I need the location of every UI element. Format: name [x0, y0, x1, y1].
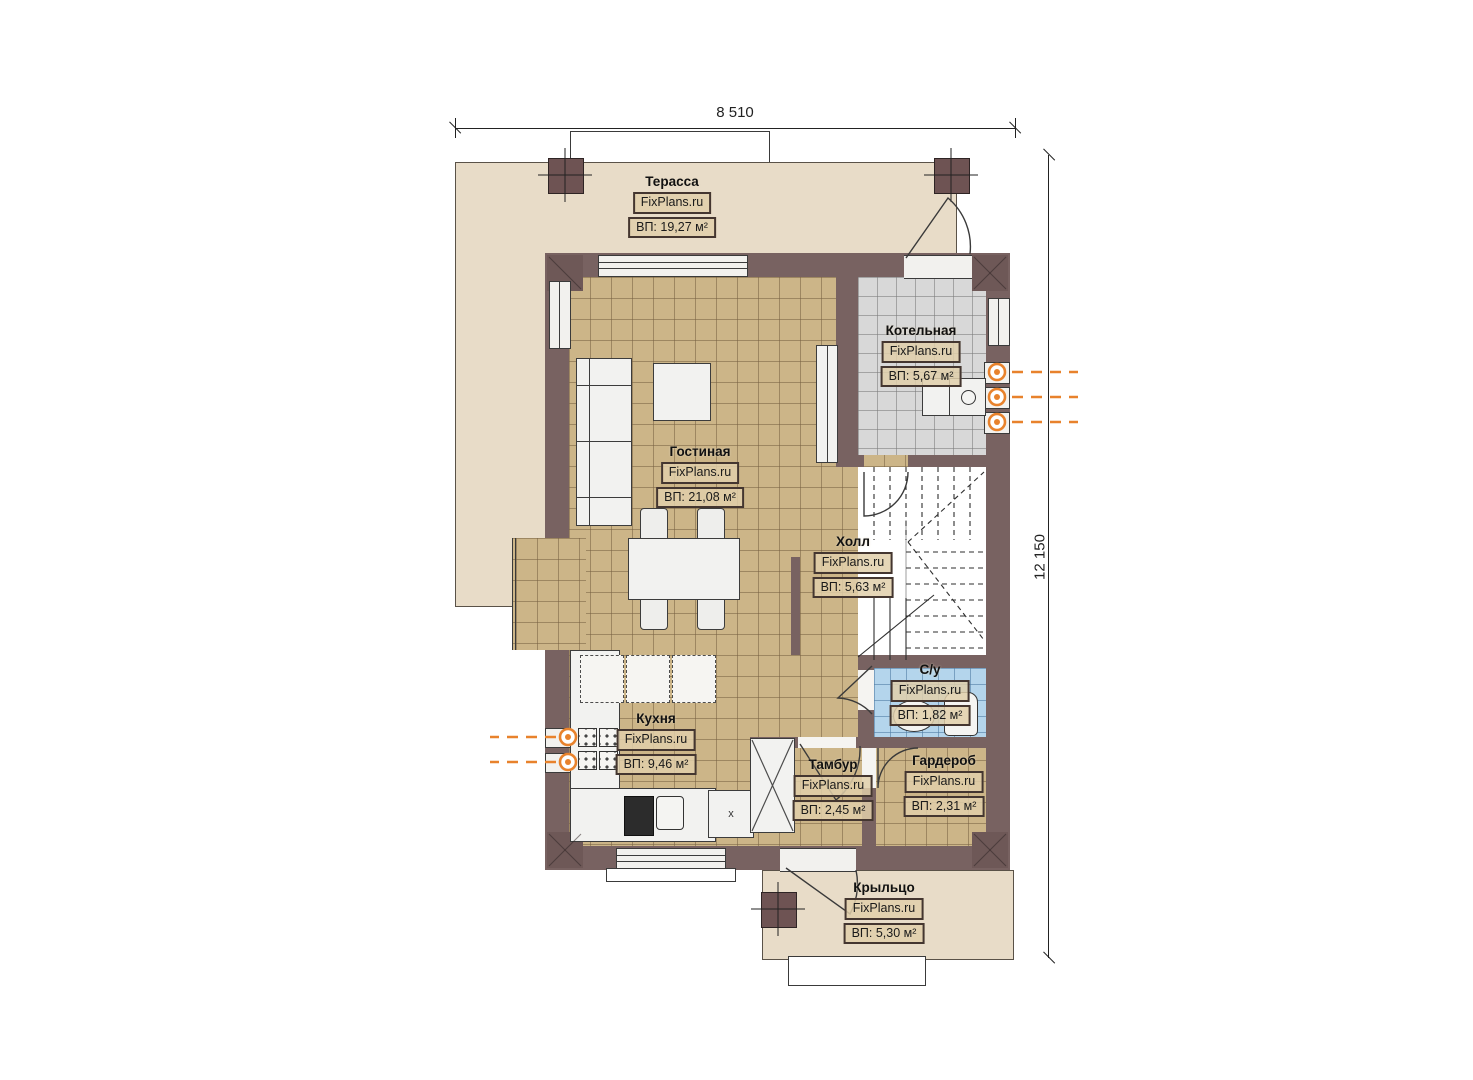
terrace-column-left: [548, 158, 584, 194]
wall-stair-stub-left: [836, 455, 864, 467]
room-label-wardrobe: Гардероб FixPlans.ru ВП: 2,31 м²: [904, 753, 985, 817]
room-area: ВП: 2,45 м²: [793, 800, 874, 822]
room-label-boiler: Котельная FixPlans.ru ВП: 5,67 м²: [881, 323, 962, 387]
room-site-badge: FixPlans.ru: [905, 771, 984, 793]
kitchen-sink: [656, 796, 684, 830]
upper-cabinet: [580, 655, 624, 703]
room-name: Холл: [836, 534, 870, 549]
dining-chair: [640, 596, 668, 630]
roof-overhang-outline: [570, 131, 770, 164]
room-label-terrace: Терасса FixPlans.ru ВП: 19,27 м²: [628, 174, 716, 238]
wall-partition-hall: [791, 557, 800, 655]
bathroom-door-opening: [858, 670, 874, 710]
room-label-hall: Холл FixPlans.ru ВП: 5,63 м²: [813, 534, 894, 598]
dining-chair: [697, 596, 725, 630]
room-site-badge: FixPlans.ru: [661, 462, 740, 484]
utility-port-left-2: [545, 753, 571, 773]
stove-burner: [578, 751, 597, 770]
dining-chair: [640, 508, 668, 542]
dimension-ext: [1015, 118, 1016, 138]
room-site-badge: FixPlans.ru: [882, 341, 961, 363]
dimension-height-label: 12 150: [1032, 534, 1049, 580]
room-site-badge: FixPlans.ru: [617, 729, 696, 751]
room-area: ВП: 9,46 м²: [616, 754, 697, 776]
bay-window-floor: [512, 538, 586, 650]
room-site-badge: FixPlans.ru: [891, 680, 970, 702]
utility-port-right-2: [984, 387, 1010, 409]
room-label-bathroom: С/у FixPlans.ru ВП: 1,82 м²: [890, 662, 971, 726]
room-area: ВП: 21,08 м²: [656, 487, 744, 509]
tambur-closet: [750, 738, 795, 833]
dimension-ext: [455, 118, 456, 138]
room-label-living: Гостиная FixPlans.ru ВП: 21,08 м²: [656, 444, 744, 508]
room-site-badge: FixPlans.ru: [814, 552, 893, 574]
entry-door-opening-terrace: [904, 255, 972, 279]
corner-pylon-top-right: [972, 255, 1008, 291]
room-name: С/у: [919, 662, 940, 677]
wall-stair-stub-right: [908, 455, 986, 467]
upper-cabinet: [626, 655, 670, 703]
dimension-width-line: [455, 128, 1015, 129]
tambur-door-opening: [798, 737, 856, 748]
room-area: ВП: 2,31 м²: [904, 796, 985, 818]
wall-bathroom-bottom: [858, 737, 986, 748]
porch-column: [761, 892, 797, 928]
cabinet-x-mark: x: [708, 790, 754, 838]
utility-port-left-1: [545, 728, 571, 748]
tall-cabinet: [816, 345, 838, 463]
porch-step: [788, 956, 926, 986]
room-area: ВП: 5,63 м²: [813, 577, 894, 599]
dining-chair: [697, 508, 725, 542]
room-site-badge: FixPlans.ru: [794, 775, 873, 797]
room-label-tambur: Тамбур FixPlans.ru ВП: 2,45 м²: [793, 757, 874, 821]
room-name: Котельная: [886, 323, 957, 338]
room-site-badge: FixPlans.ru: [845, 898, 924, 920]
window-south-kitchen: [616, 848, 726, 870]
kitchen-appliance: [624, 796, 654, 836]
wall-living-boiler: [836, 277, 858, 463]
room-area: ВП: 5,30 м²: [844, 923, 925, 945]
room-name: Гардероб: [912, 753, 976, 768]
room-name: Крыльцо: [853, 880, 914, 895]
utility-port-right-1: [984, 362, 1010, 384]
room-name: Терасса: [645, 174, 699, 189]
room-label-porch: Крыльцо FixPlans.ru ВП: 5,30 м²: [844, 880, 925, 944]
window-sill-kitchen: [606, 868, 736, 882]
window-west-living: [549, 281, 571, 349]
utility-port-right-3: [984, 412, 1010, 434]
dimension-width-label: 8 510: [455, 104, 1015, 121]
room-name: Гостиная: [669, 444, 730, 459]
room-name: Кухня: [636, 711, 675, 726]
sofa: [576, 358, 632, 526]
room-label-kitchen: Кухня FixPlans.ru ВП: 9,46 м²: [616, 711, 697, 775]
floor-plan: x: [0, 0, 1473, 1080]
sliding-door-terrace: [598, 255, 748, 277]
room-area: ВП: 1,82 м²: [890, 705, 971, 727]
room-site-badge: FixPlans.ru: [633, 192, 712, 214]
room-area: ВП: 5,67 м²: [881, 366, 962, 388]
terrace-column-right: [934, 158, 970, 194]
window-east-boiler: [988, 298, 1010, 346]
upper-cabinet: [672, 655, 716, 703]
dining-table: [628, 538, 740, 600]
front-door-opening: [780, 848, 856, 872]
corner-pylon-bottom-right: [972, 832, 1008, 868]
room-name: Тамбур: [809, 757, 858, 772]
room-area: ВП: 19,27 м²: [628, 217, 716, 239]
stove-burner: [578, 728, 597, 747]
cabinet-mark-text: x: [728, 808, 734, 820]
coffee-table: [653, 363, 711, 421]
